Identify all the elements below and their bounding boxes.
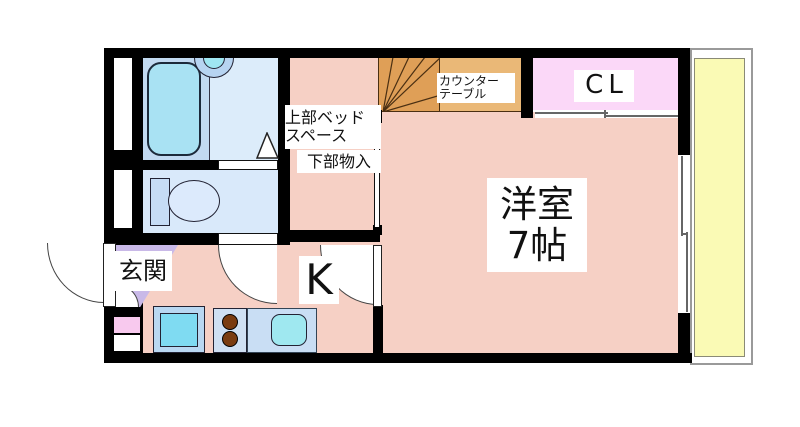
balcony-window-meet [681, 233, 688, 235]
storage-label-text: 下部物入 [307, 153, 371, 171]
wall-top [104, 48, 688, 58]
closet-slider-line-left [535, 112, 608, 114]
kitchen-side-window [114, 335, 140, 351]
toilet-window [114, 170, 132, 228]
kitchen-label: K [299, 256, 339, 304]
entrance-label: 玄関 [114, 251, 172, 291]
closet-slider-line-right [604, 115, 678, 117]
bathroom-folding-door-mark [256, 132, 280, 160]
closet-label: CL [574, 70, 634, 102]
floor-plan: 洋室 7帖 CL K 玄関 カウンター テーブル 上部ベッド スペース 下部物入 [0, 0, 800, 427]
balcony-floor [694, 58, 745, 357]
closet-label-text: CL [580, 71, 628, 100]
bed-space-label-line1: 上部ベッド [285, 109, 365, 127]
bathroom-window [114, 58, 132, 150]
balcony-window-pane-1 [681, 156, 683, 236]
wall-toilet-bottom [104, 233, 218, 245]
counter-table-label: カウンター テーブル [437, 73, 515, 103]
wall-closet-left [521, 55, 533, 118]
balcony-window-pane-2 [686, 232, 688, 312]
main-room-label-line2: 7帖 [507, 225, 568, 266]
entrance-label-text: 玄関 [119, 258, 167, 285]
toilet-door-opening [218, 233, 278, 245]
stove [213, 308, 247, 353]
bed-space-label: 上部ベッド スペース [285, 105, 381, 149]
closet-slider-tick [604, 110, 606, 118]
loft-stairs [378, 57, 440, 112]
wall-bed-space-bottom [278, 230, 380, 242]
storage-label: 下部物入 [297, 150, 381, 173]
wall-right-lower [678, 313, 690, 363]
wall-bathroom-bottom [104, 160, 218, 170]
kitchen-sink [271, 314, 307, 346]
main-room-label: 洋室 7帖 [487, 178, 587, 272]
entrance-door-swing-arc [47, 243, 104, 303]
wall-bottom [104, 353, 692, 363]
meter-panel [114, 317, 140, 333]
counter-label-line1: カウンター [439, 75, 499, 88]
stove-burner-1 [222, 314, 238, 330]
bed-space-label-line2: スペース [285, 127, 347, 145]
toilet-tank [150, 178, 170, 226]
toilet-bowl [168, 180, 220, 222]
washing-machine [160, 313, 198, 347]
room-door-leaf [373, 245, 382, 307]
counter-label-line2: テーブル [439, 88, 486, 101]
wall-right-upper [678, 48, 690, 155]
bathtub [147, 62, 201, 156]
stove-burner-2 [222, 331, 238, 347]
wall-kitchen-main-lower [373, 305, 383, 353]
bathroom-door-opening [218, 160, 278, 170]
kitchen-label-text: K [305, 256, 333, 303]
stairs-fan-lines [379, 57, 441, 112]
main-room-label-line1: 洋室 [500, 184, 574, 225]
wall-entrance-bottom [104, 307, 143, 317]
